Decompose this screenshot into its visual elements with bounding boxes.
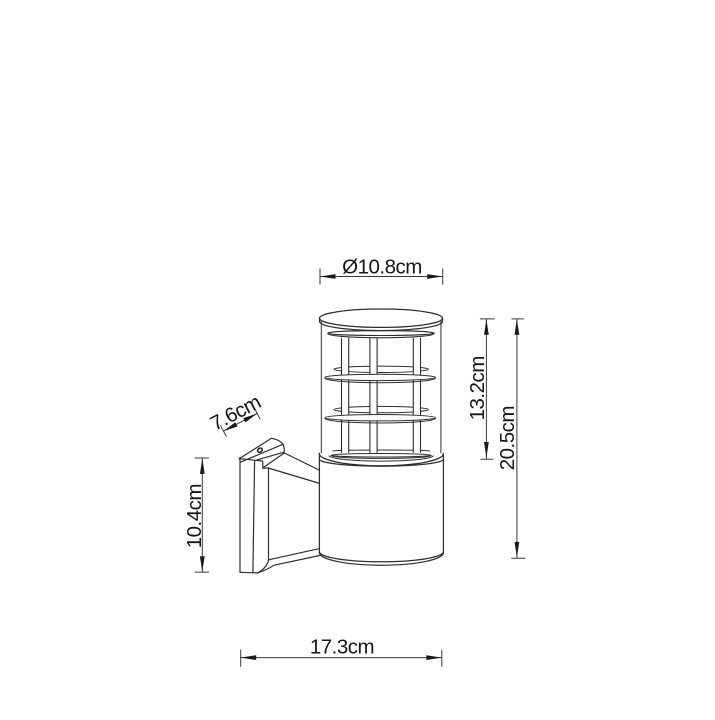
svg-text:13.2cm: 13.2cm — [466, 356, 489, 420]
svg-text:10.4cm: 10.4cm — [183, 484, 206, 548]
svg-text:17.3cm: 17.3cm — [310, 635, 374, 658]
svg-text:20.5cm: 20.5cm — [496, 406, 519, 470]
svg-text:Ø10.8cm: Ø10.8cm — [342, 256, 422, 279]
